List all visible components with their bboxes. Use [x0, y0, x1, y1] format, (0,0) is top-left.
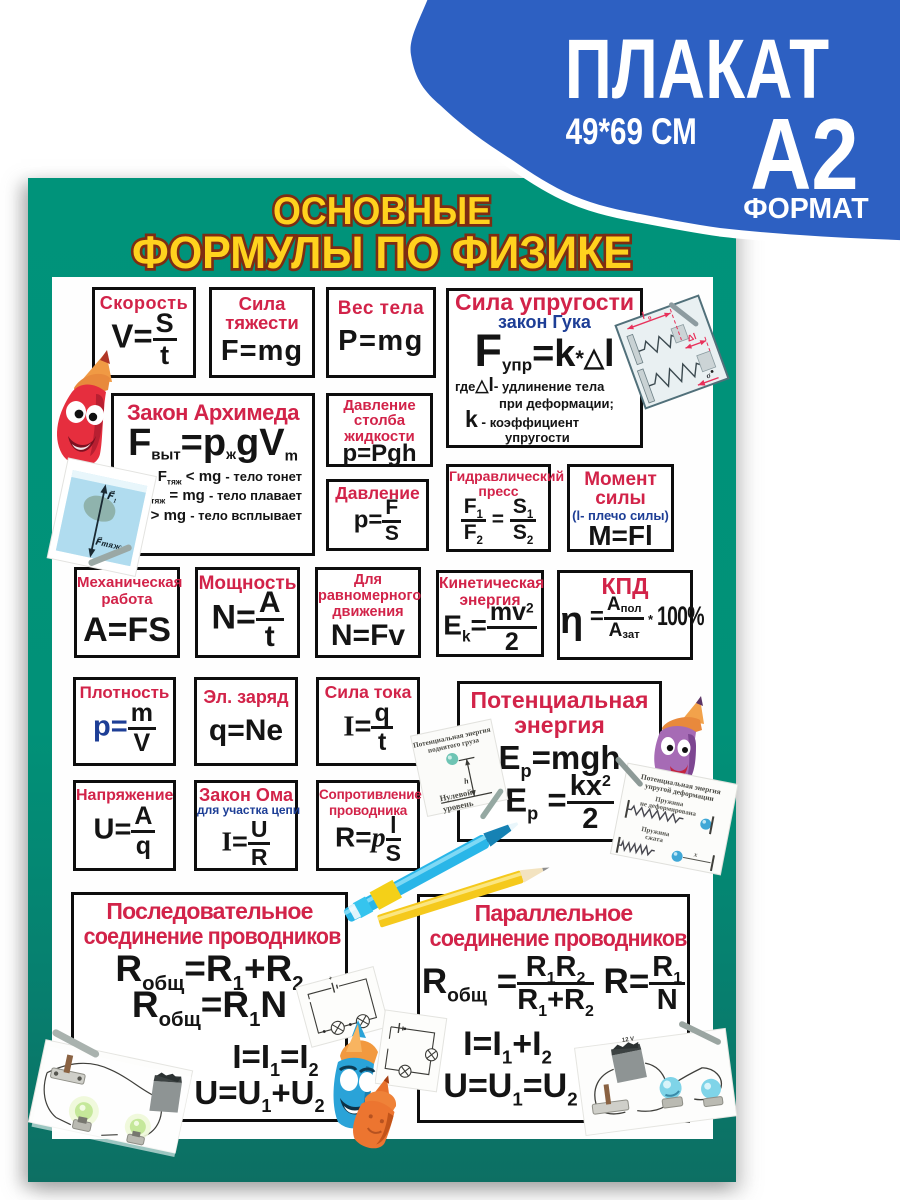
svg-text:49*69 СМ: 49*69 СМ [566, 112, 697, 153]
svg-text:ФОРМАТ: ФОРМАТ [743, 193, 869, 225]
